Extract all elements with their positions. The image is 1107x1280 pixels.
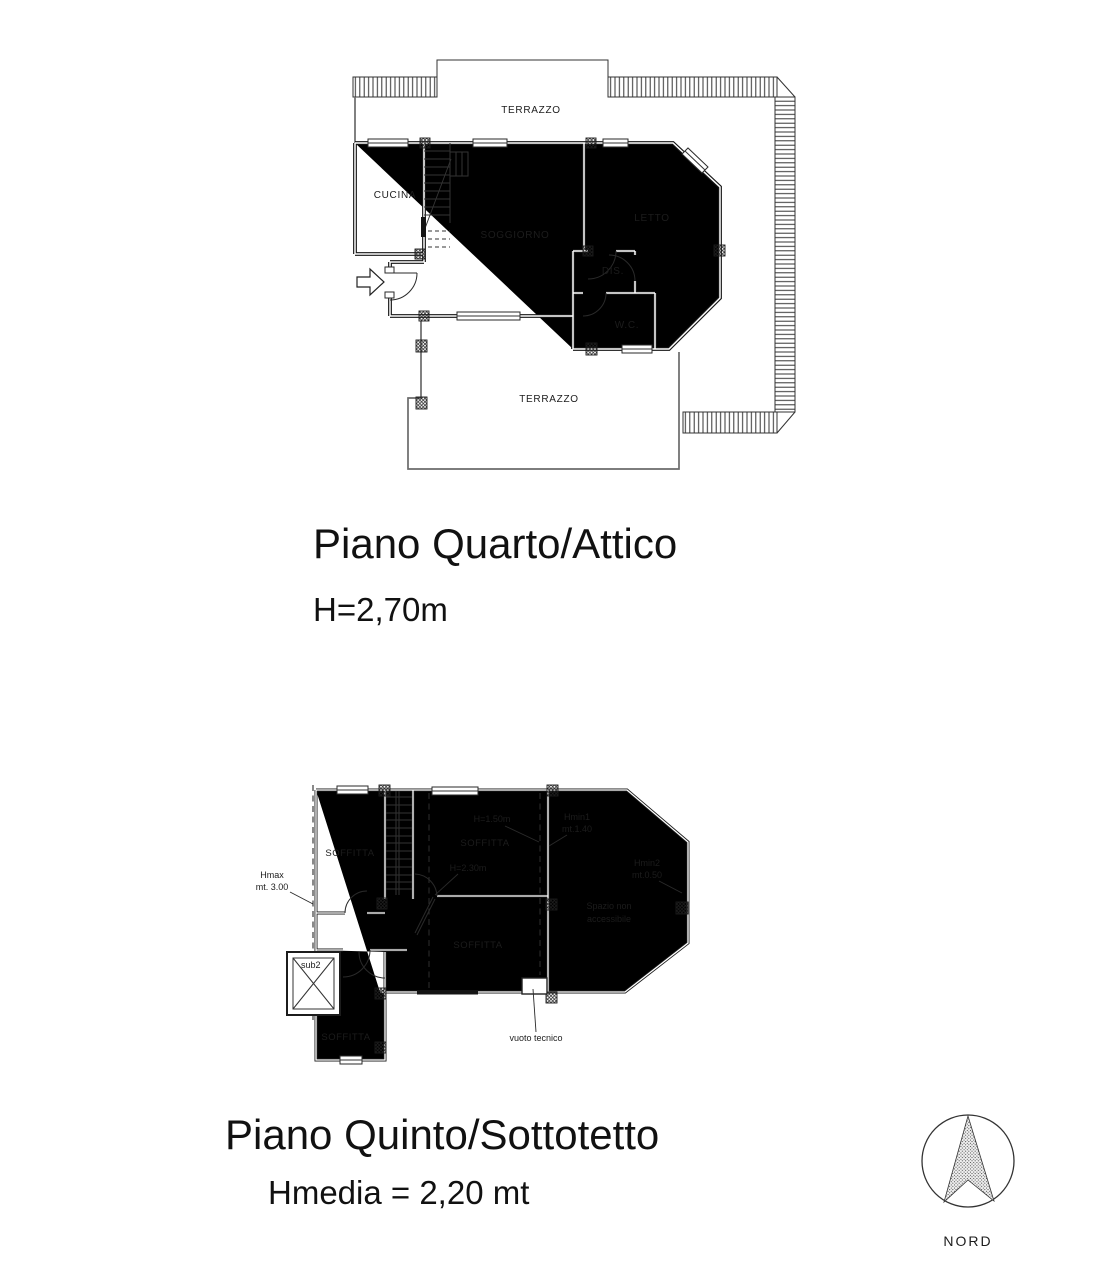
- plan-sottotetto: sub2 SOFFITTA SOFFITTA SOFFITTA SOFFITTA…: [256, 785, 688, 1064]
- north-arrow-icon: [944, 1116, 994, 1202]
- railing-top-right: [608, 77, 777, 97]
- window-sill: [417, 990, 478, 995]
- vuoto-tecnico-box: [522, 978, 547, 994]
- railing-south-east: [683, 412, 777, 433]
- floor-plan-drawing: TERRAZZO CUCINA SOGGIORNO LETTO DIS. W.C…: [0, 0, 1107, 1280]
- compass-label: NORD: [943, 1233, 992, 1249]
- attico-walls: [355, 143, 720, 349]
- north-compass: NORD: [922, 1115, 1014, 1249]
- room-label-cucina: CUCINA: [374, 190, 417, 201]
- annotation-hmax-line2: mt. 3.00: [256, 882, 289, 892]
- annotation-hmin2-line1: Hmin2: [634, 858, 660, 868]
- room-label-dis: DIS.: [602, 266, 624, 277]
- room-label-terrazzo-top: TERRAZZO: [501, 105, 561, 116]
- entrance-arrow-icon: [357, 269, 384, 295]
- attico-title: Piano Quarto/Attico: [313, 520, 677, 567]
- plan-attico: TERRAZZO CUCINA SOGGIORNO LETTO DIS. W.C…: [353, 60, 795, 469]
- room-label-soffitta-n: SOFFITTA: [460, 838, 509, 849]
- annotation-hmax-line1: Hmax: [260, 870, 284, 880]
- label-spazio-line2: accessibile: [587, 914, 631, 924]
- room-label-terrazzo-bottom: TERRAZZO: [519, 394, 579, 405]
- room-label-wc: W.C.: [615, 320, 639, 331]
- room-label-letto: LETTO: [634, 213, 670, 224]
- attico-height-note: H=2,70m: [313, 591, 448, 628]
- sottotetto-height-note: Hmedia = 2,20 mt: [268, 1174, 529, 1211]
- floor-plan-sheet: TERRAZZO CUCINA SOGGIORNO LETTO DIS. W.C…: [0, 0, 1107, 1280]
- sottotetto-walls: [316, 790, 688, 1060]
- room-label-soffitta-sw: SOFFITTA: [321, 1032, 370, 1043]
- label-vuoto-tecnico: vuoto tecnico: [509, 1033, 562, 1043]
- annotation-hmin1-line1: Hmin1: [564, 812, 590, 822]
- room-label-soggiorno: SOGGIORNO: [480, 230, 549, 241]
- annotation-hmin2-line2: mt.0.50: [632, 870, 662, 880]
- annotation-h150: H=1.50m: [474, 814, 511, 824]
- label-sub2: sub2: [301, 960, 321, 970]
- room-label-soffitta-c: SOFFITTA: [453, 940, 502, 951]
- elevator-shaft-sub2: sub2: [287, 952, 340, 1015]
- sottotetto-title: Piano Quinto/Sottotetto: [225, 1111, 659, 1158]
- railing-top-left: [353, 77, 437, 97]
- annotation-hmin1-line2: mt.1.40: [562, 824, 592, 834]
- railing-east: [775, 97, 795, 412]
- label-spazio-line1: Spazio non: [586, 901, 631, 911]
- room-label-soffitta-nw: SOFFITTA: [325, 848, 374, 859]
- annotation-h230: H=2.30m: [450, 863, 487, 873]
- terrace-notch-outline: [437, 60, 608, 77]
